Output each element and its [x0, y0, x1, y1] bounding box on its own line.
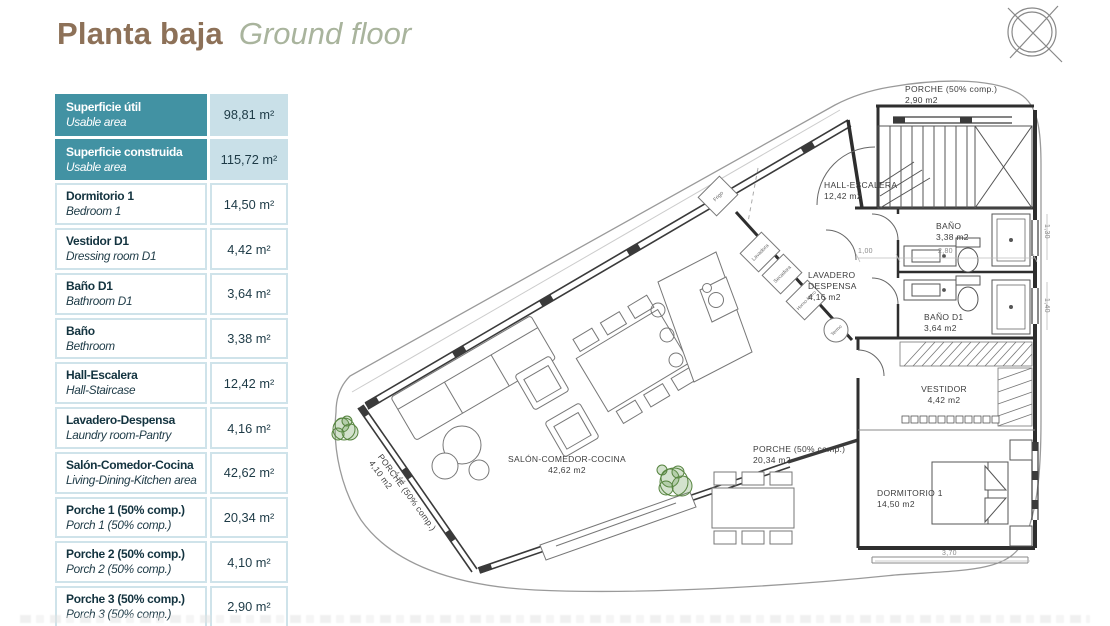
dimension-label: 2,80 [938, 248, 953, 255]
tv-sideboard [540, 492, 696, 560]
staircase [878, 126, 1032, 208]
room-name: PORCHE (50% comp.) [753, 444, 845, 455]
compass-icon [1008, 6, 1062, 62]
room-area: 4,16 m2 [808, 292, 864, 303]
floorplan-page: Planta bajaGround floor Superficie útilU… [0, 0, 1110, 626]
room-name: BAÑO D1 [924, 312, 963, 323]
room-name: DORMITORIO 1 [877, 488, 943, 499]
room-area: 14,50 m2 [877, 499, 943, 510]
room-area: 12,42 m2 [824, 191, 897, 202]
room-label-salon: SALÓN-COMEDOR-COCINA 42,62 m2 [508, 454, 626, 476]
room-name: HALL-ESCALERA [824, 180, 897, 191]
dimension-label: 1,40 [1043, 298, 1050, 313]
room-label-bano-d1: BAÑO D1 3,64 m2 [924, 312, 963, 334]
room-label-bano: BAÑO 3,38 m2 [936, 221, 969, 243]
room-name: BAÑO [936, 221, 969, 232]
room-label-porch3: PORCHE (50% comp.) 2,90 m2 [905, 84, 997, 106]
room-label-vestidor: VESTIDOR 4,42 m2 [921, 384, 967, 406]
plant [657, 465, 692, 496]
room-area: 4,42 m2 [921, 395, 967, 406]
room-area: 3,38 m2 [936, 232, 969, 243]
shoe-rack-dots [902, 416, 999, 423]
room-area: 3,64 m2 [924, 323, 963, 334]
room-label-hall: HALL-ESCALERA 12,42 m2 [824, 180, 897, 202]
room-label-lavadero: LAVADERO DESPENSA 4,16 m2 [808, 270, 864, 303]
room-name: SALÓN-COMEDOR-COCINA [508, 454, 626, 465]
bed [932, 440, 1032, 546]
armchair [545, 403, 600, 458]
outdoor-dining-table [712, 472, 794, 544]
room-area: 20,34 m2 [753, 455, 845, 466]
dimension-label: 1,30 [1043, 224, 1050, 239]
floor-plan: Frigo Lavadora Secadora Horno-Micro Term… [0, 0, 1110, 626]
room-name: LAVADERO DESPENSA [808, 270, 864, 292]
coffee-tables [432, 426, 489, 480]
room-name: VESTIDOR [921, 384, 967, 395]
dimension-label: 3,70 [942, 550, 957, 557]
porch-window-north [893, 117, 1012, 123]
room-area: 42,62 m2 [508, 465, 626, 476]
room-label-dormitorio: DORMITORIO 1 14,50 m2 [877, 488, 943, 510]
room-label-porch1: PORCHE (50% comp.) 20,34 m2 [753, 444, 845, 466]
cutoff-disclaimer-strip [20, 615, 1090, 623]
dimension-label: 1,00 [858, 248, 873, 255]
room-area: 2,90 m2 [905, 95, 997, 106]
room-name: PORCHE (50% comp.) [905, 84, 997, 95]
